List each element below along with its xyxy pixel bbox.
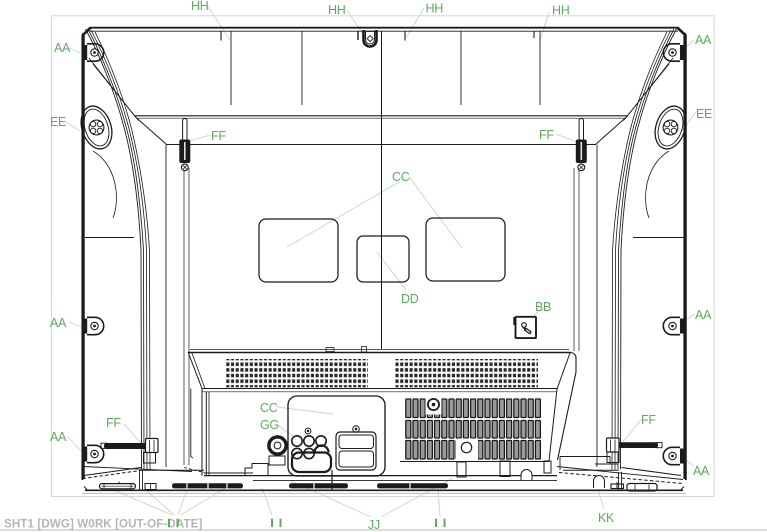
svg-text:FF: FF bbox=[106, 416, 121, 430]
svg-text:AA: AA bbox=[50, 316, 67, 330]
svg-text:AA: AA bbox=[50, 430, 67, 444]
svg-text:BB: BB bbox=[535, 300, 551, 314]
svg-text:CC: CC bbox=[392, 170, 410, 184]
svg-text:FF: FF bbox=[539, 128, 554, 142]
svg-text:EE: EE bbox=[696, 107, 712, 121]
svg-text:SHT1 [DWG] W0RK [OUT-OF-DATE]: SHT1 [DWG] W0RK [OUT-OF-DATE] bbox=[4, 518, 203, 531]
svg-text:EE: EE bbox=[50, 115, 66, 129]
svg-text:AA: AA bbox=[695, 33, 712, 47]
svg-text:FF: FF bbox=[641, 413, 656, 427]
svg-text:HH: HH bbox=[328, 3, 346, 17]
svg-text:HH: HH bbox=[426, 2, 444, 16]
svg-text:AA: AA bbox=[695, 308, 712, 322]
svg-text:CC: CC bbox=[260, 401, 278, 415]
svg-text:HH: HH bbox=[191, 0, 209, 13]
svg-text:KK: KK bbox=[598, 511, 615, 525]
svg-text:AA: AA bbox=[54, 41, 71, 55]
svg-text:JJ: JJ bbox=[368, 518, 380, 532]
svg-text:FF: FF bbox=[211, 129, 226, 143]
svg-text:AA: AA bbox=[693, 464, 710, 478]
svg-text:HH: HH bbox=[552, 4, 570, 18]
svg-text:GG: GG bbox=[260, 418, 279, 432]
svg-text:DD: DD bbox=[401, 292, 419, 306]
